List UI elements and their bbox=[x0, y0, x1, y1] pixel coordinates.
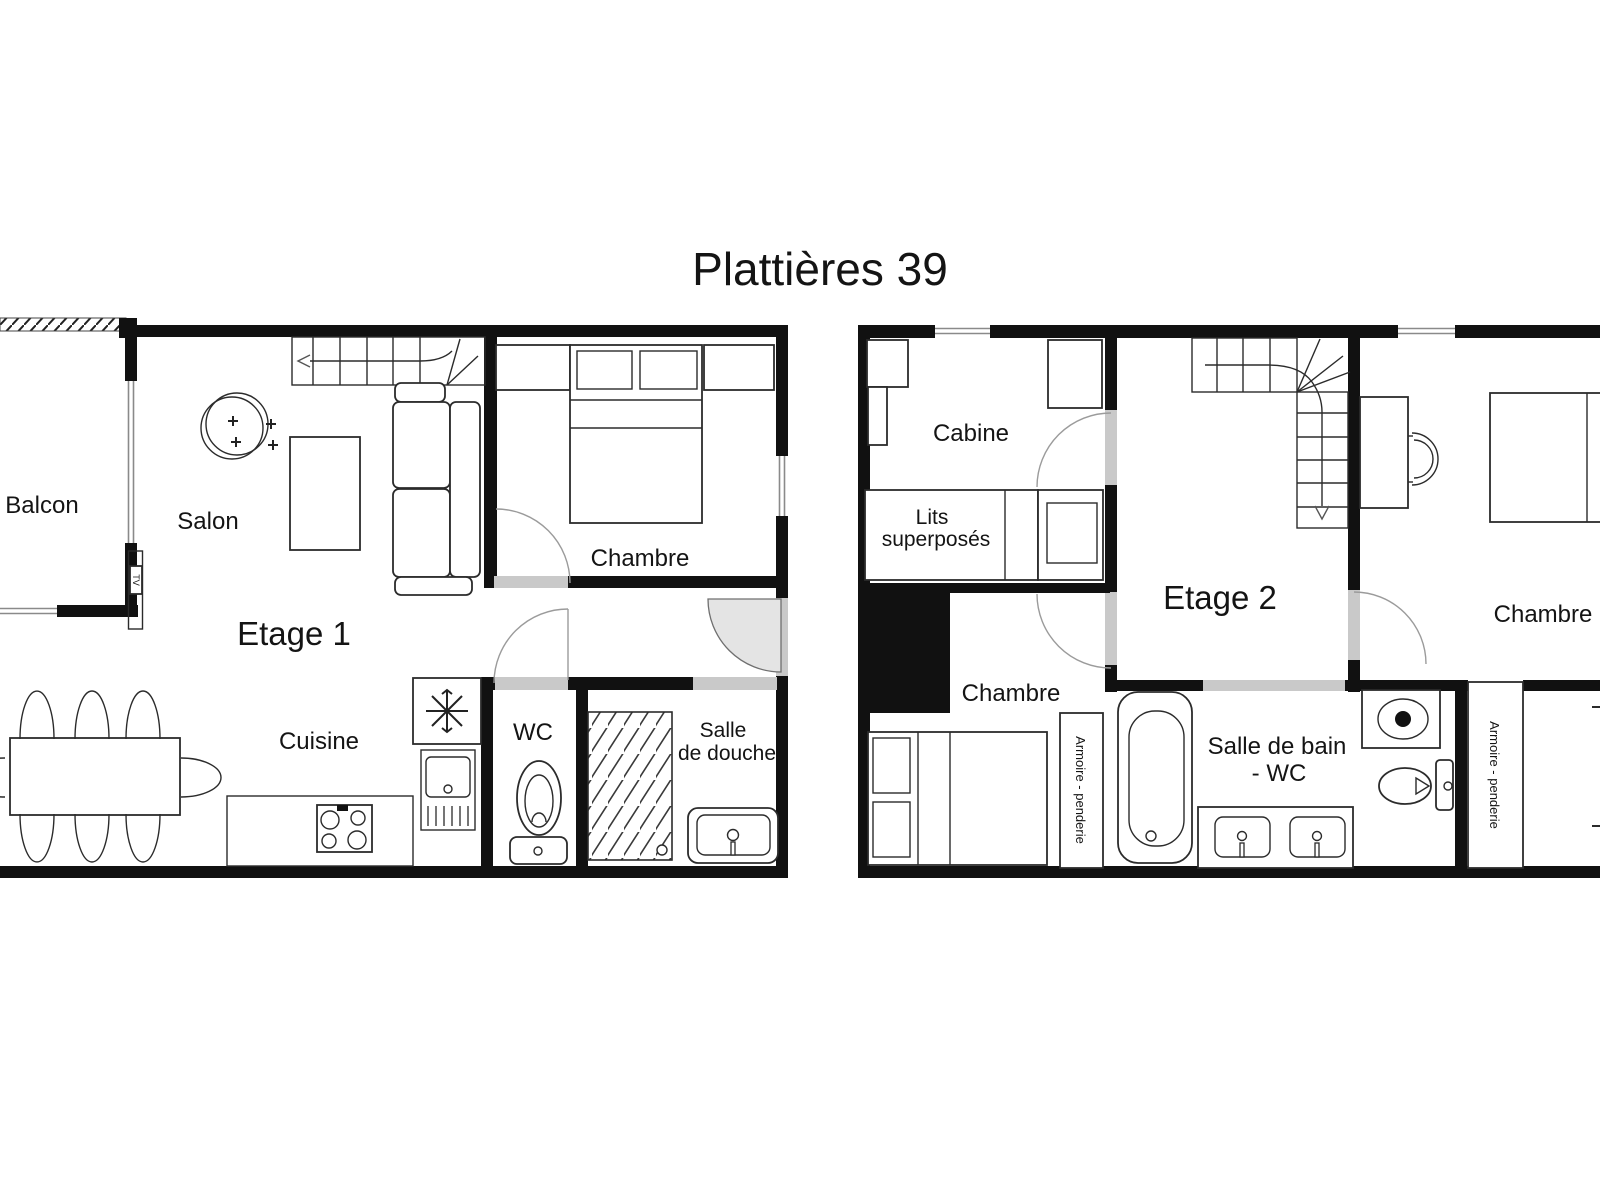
bath-door-gap bbox=[1203, 680, 1345, 691]
label-wc: WC bbox=[513, 719, 553, 746]
label-lits-1: Lits bbox=[916, 506, 949, 529]
bedside-cabinet bbox=[704, 345, 774, 390]
wardrobe bbox=[1048, 340, 1102, 408]
wall-top bbox=[125, 325, 788, 337]
tv-label: TV bbox=[131, 574, 141, 586]
label-bain-2: - WC bbox=[1252, 760, 1307, 787]
window-cabine-north bbox=[935, 325, 990, 338]
double-bed bbox=[1490, 393, 1600, 522]
label-etage2: Etage 2 bbox=[1163, 579, 1277, 616]
label-chambre2r: Chambre bbox=[1494, 601, 1593, 628]
balcony-rail-hatch bbox=[0, 318, 126, 331]
window-chambre-north bbox=[1398, 325, 1455, 338]
desk bbox=[1360, 397, 1408, 508]
wall-salon-chambre bbox=[484, 337, 497, 583]
floor-plan-drawing: Plattières 39 bbox=[0, 0, 1600, 1200]
chambre2l-door-gap bbox=[1105, 592, 1117, 667]
label-lits-2: superposés bbox=[882, 528, 991, 551]
wall bbox=[1523, 680, 1600, 691]
faucet bbox=[1315, 843, 1319, 857]
label-cuisine: Cuisine bbox=[279, 728, 359, 755]
label-chambre1: Chambre bbox=[591, 545, 690, 572]
wall-bunk-south bbox=[950, 583, 1110, 593]
chambre2l-furniture: Armoire - penderie bbox=[868, 713, 1103, 868]
wall-wc-douche bbox=[576, 677, 588, 866]
label-douche-2: de douche bbox=[678, 742, 776, 765]
vanity bbox=[1198, 807, 1353, 868]
floor-plan-page: Plattières 39 bbox=[0, 0, 1600, 1200]
double-bed bbox=[570, 345, 702, 523]
window-salon-west bbox=[125, 381, 137, 543]
stove-control bbox=[337, 805, 348, 811]
sofa bbox=[393, 383, 480, 595]
washer-door bbox=[1395, 711, 1411, 727]
dining-table bbox=[10, 738, 180, 815]
wall-stairs-east bbox=[1348, 325, 1360, 592]
snowflake-icon bbox=[426, 690, 468, 732]
window-chambre-east bbox=[776, 456, 788, 516]
wall-bath-east bbox=[1455, 690, 1467, 868]
chambre2r-door-gap bbox=[1348, 590, 1360, 662]
douche-door-gap bbox=[693, 677, 777, 690]
wc-door-gap bbox=[495, 677, 568, 690]
wall-cabine-east bbox=[1105, 325, 1117, 413]
label-chambre2l: Chambre bbox=[962, 680, 1061, 707]
faucet bbox=[1240, 843, 1244, 857]
toilet-tank bbox=[510, 837, 567, 864]
faucet bbox=[731, 842, 735, 855]
label-cabine: Cabine bbox=[933, 420, 1009, 447]
double-bed bbox=[868, 732, 1047, 865]
page-title: Plattières 39 bbox=[692, 243, 948, 295]
label-bain-1: Salle de bain bbox=[1208, 733, 1347, 760]
wall bbox=[484, 576, 494, 588]
wall-cuisine-wc bbox=[481, 677, 493, 866]
label-douche-1: Salle bbox=[700, 719, 747, 742]
duct-mass bbox=[858, 583, 950, 713]
cabine-door-gap bbox=[1105, 410, 1117, 487]
wall bbox=[1105, 485, 1117, 595]
wall-chambre-south bbox=[568, 576, 788, 588]
window-balcony-south bbox=[0, 605, 57, 617]
toilet-bowl bbox=[517, 761, 561, 835]
wall-bottom bbox=[0, 866, 788, 878]
bedside-cabinet bbox=[496, 345, 570, 390]
label-armoire-right: Armoire - penderie bbox=[1487, 721, 1502, 829]
label-etage1: Etage 1 bbox=[237, 615, 351, 652]
chambre-door-gap bbox=[494, 576, 568, 588]
coffee-table bbox=[290, 437, 360, 550]
wall-left-upper bbox=[125, 325, 137, 381]
wall bbox=[777, 677, 788, 690]
label-balcon: Balcon bbox=[5, 492, 78, 519]
shower-tray bbox=[588, 712, 672, 860]
wall-balcony-south bbox=[57, 605, 138, 617]
shower-drain bbox=[657, 845, 667, 855]
wall-right-upper bbox=[776, 325, 788, 456]
label-armoire-left: Armoire - penderie bbox=[1073, 736, 1088, 844]
label-salon: Salon bbox=[177, 508, 238, 535]
